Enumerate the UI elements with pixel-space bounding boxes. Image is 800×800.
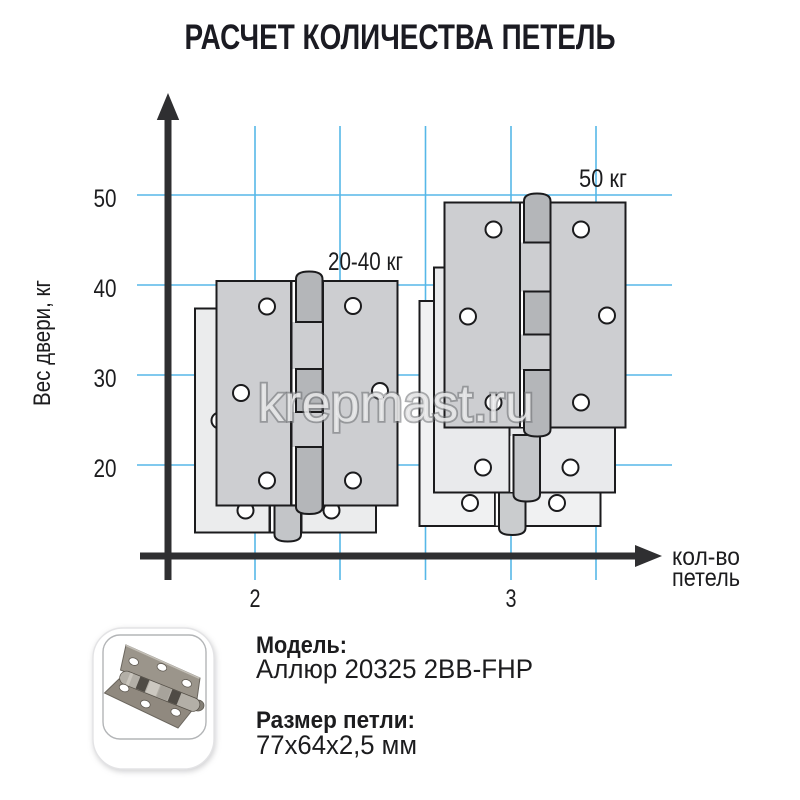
svg-text:40: 40 — [94, 275, 117, 303]
svg-text:30: 30 — [94, 365, 117, 393]
svg-text:50 кг: 50 кг — [579, 165, 627, 193]
svg-text:Вес двери, кг: Вес двери, кг — [29, 280, 56, 406]
svg-text:Аллюр 20325 2BB-FHP: Аллюр 20325 2BB-FHP — [256, 654, 533, 684]
svg-text:77x64x2,5 мм: 77x64x2,5 мм — [256, 730, 417, 760]
svg-text:РАСЧЕТ КОЛИЧЕСТВА ПЕТЕЛЬ: РАСЧЕТ КОЛИЧЕСТВА ПЕТЕЛЬ — [185, 18, 616, 57]
svg-text:50: 50 — [94, 185, 117, 213]
svg-text:20-40 кг: 20-40 кг — [328, 248, 403, 276]
svg-text:2: 2 — [250, 585, 261, 613]
svg-text:петель: петель — [672, 564, 740, 592]
svg-text:krepmast.ru: krepmast.ru — [258, 375, 534, 433]
svg-text:20: 20 — [94, 455, 117, 483]
svg-text:3: 3 — [506, 585, 517, 613]
